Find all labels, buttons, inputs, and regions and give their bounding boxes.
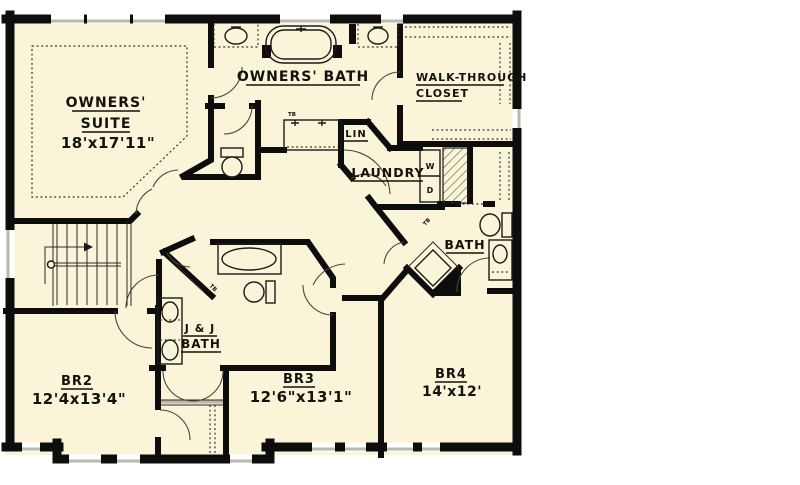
room-linen: LIN [344, 129, 368, 141]
window-br2-left [20, 443, 42, 452]
window-br2-bay-a [67, 455, 103, 464]
owners-suite-label-2: SUITE [81, 116, 132, 132]
laundry-counter [443, 148, 468, 203]
dryer-label: D [427, 186, 434, 195]
bath-toilet [480, 213, 512, 237]
bath-label: BATH [444, 237, 485, 252]
window-br3-a [310, 443, 337, 452]
floor-plan-page: OWNERS' SUITE 18'x17'11" OWNERS' BATH WA… [0, 0, 800, 485]
window-nook-bay [228, 455, 254, 464]
washer-label: W [426, 162, 435, 171]
window-owners-suite [49, 15, 167, 24]
lin-label: LIN [345, 129, 366, 140]
room-laundry: LAUNDRY [351, 165, 424, 181]
jj-toilet [244, 281, 275, 303]
jj-label-2: BATH [181, 337, 221, 351]
owners-suite-dims: 18'x17'11" [61, 134, 155, 152]
br4-label: BR4 [435, 367, 467, 382]
br3-dims: 12'6"x13'1" [250, 388, 353, 406]
window-stair [6, 228, 15, 280]
jj-label-1: J & J [184, 322, 215, 335]
window-closet [513, 107, 522, 130]
window-owners-bath [278, 15, 332, 24]
wtc-label-1: WALK-THROUGH [416, 71, 527, 84]
window-br4-b [420, 443, 442, 452]
br2-dims: 12'4x13'4" [32, 390, 126, 408]
window-br3-b [343, 443, 368, 452]
room-owners-bath: OWNERS' BATH [237, 69, 369, 85]
br3-label: BR3 [283, 372, 315, 387]
br4-dims: 14'x12' [422, 384, 482, 400]
toilet-owners [221, 148, 243, 177]
window-br4-a [385, 443, 415, 452]
room-bath: BATH [444, 237, 485, 253]
room-jj-bath: J & J BATH [181, 322, 221, 352]
towel-bar-label-1: TB [288, 112, 296, 118]
window-hall [379, 15, 405, 24]
wtc-label-2: CLOSET [416, 87, 469, 100]
window-br2-bay-b [115, 455, 142, 464]
laundry-label: LAUNDRY [351, 165, 424, 180]
owners-suite-label-1: OWNERS' [66, 95, 147, 111]
owners-bath-label: OWNERS' BATH [237, 69, 369, 85]
floor-plan: OWNERS' SUITE 18'x17'11" OWNERS' BATH WA… [0, 0, 800, 485]
br2-label: BR2 [61, 374, 93, 389]
